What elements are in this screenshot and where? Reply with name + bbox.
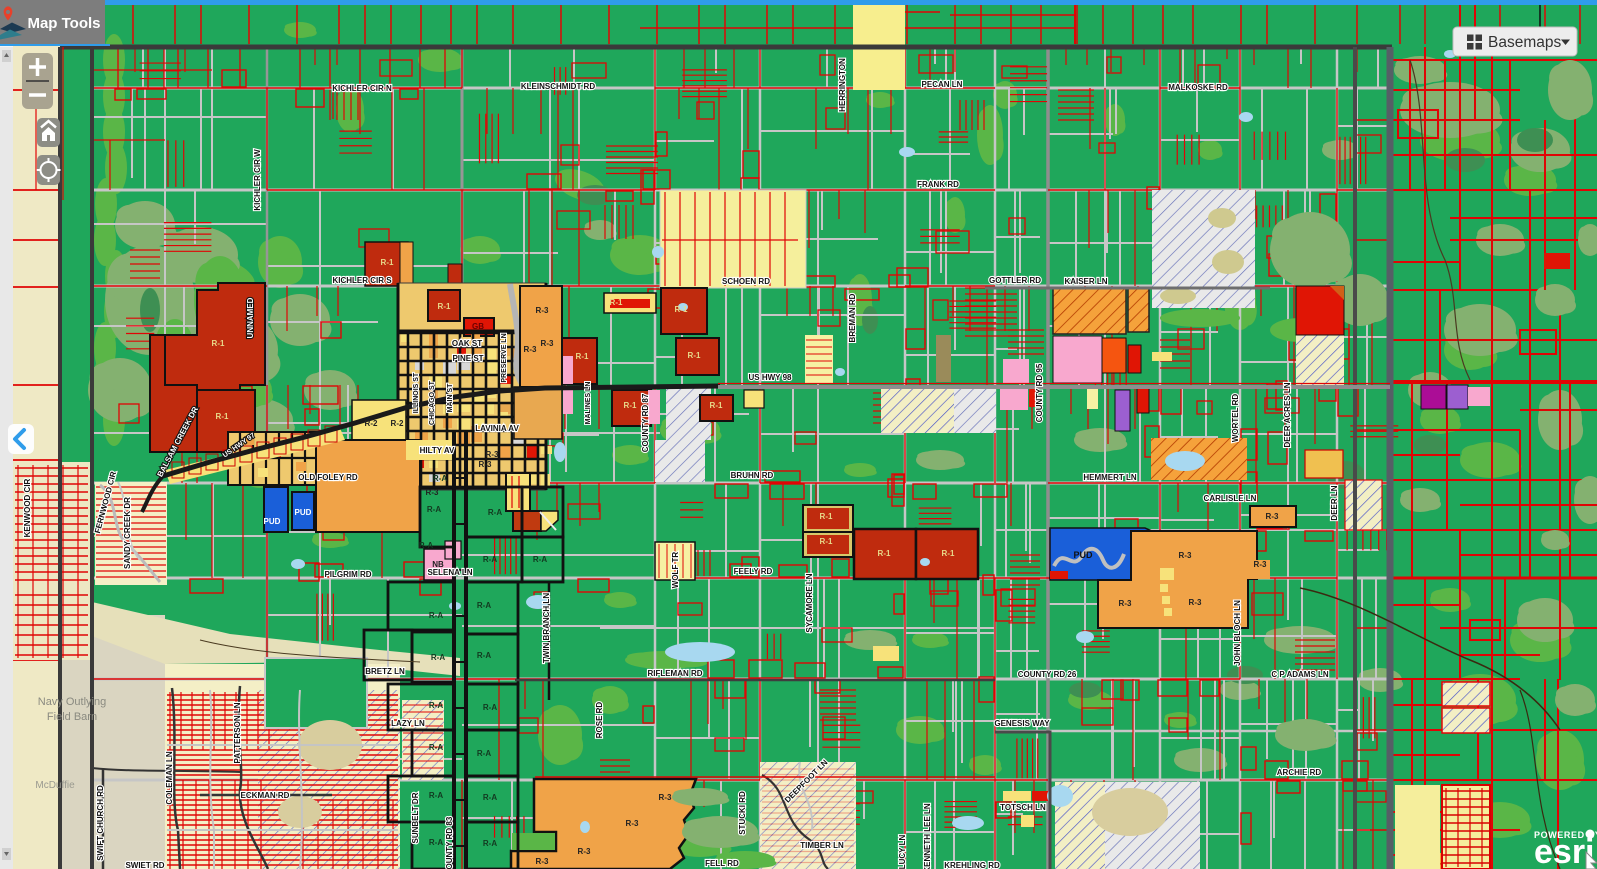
svg-text:R-1: R-1 bbox=[710, 401, 723, 410]
svg-text:LAVINIA AV: LAVINIA AV bbox=[475, 424, 519, 433]
svg-text:R-3: R-3 bbox=[1119, 599, 1132, 608]
svg-text:LUCY LN: LUCY LN bbox=[898, 835, 907, 869]
svg-text:C P ADAMS LN: C P ADAMS LN bbox=[1271, 670, 1329, 679]
svg-text:R-A: R-A bbox=[483, 793, 497, 802]
svg-text:R-A: R-A bbox=[533, 555, 547, 564]
svg-text:ARCHIE RD: ARCHIE RD bbox=[1277, 768, 1322, 777]
svg-text:STUCKI RD: STUCKI RD bbox=[738, 791, 747, 835]
svg-text:R-1: R-1 bbox=[576, 352, 589, 361]
svg-text:COUNTY RD 87: COUNTY RD 87 bbox=[641, 393, 650, 452]
svg-text:KREHLING RD: KREHLING RD bbox=[944, 861, 1000, 869]
svg-text:R-3: R-3 bbox=[541, 339, 554, 348]
svg-text:R-A: R-A bbox=[429, 743, 443, 752]
svg-text:BRETZ LN: BRETZ LN bbox=[365, 667, 405, 676]
svg-text:Navy Outlying: Navy Outlying bbox=[38, 696, 106, 708]
svg-text:R-2: R-2 bbox=[391, 419, 404, 428]
svg-text:R-1: R-1 bbox=[942, 549, 955, 558]
svg-text:R-3: R-3 bbox=[1179, 551, 1192, 560]
svg-text:RIFLEMAN RD: RIFLEMAN RD bbox=[647, 669, 702, 678]
svg-text:SWIFT CHURCH RD: SWIFT CHURCH RD bbox=[96, 785, 105, 861]
svg-text:PUD: PUD bbox=[1073, 550, 1093, 560]
svg-text:SWIET RD: SWIET RD bbox=[125, 861, 164, 869]
svg-text:R-3: R-3 bbox=[536, 306, 549, 315]
svg-text:R-1: R-1 bbox=[688, 351, 701, 360]
svg-text:CARLISLE LN: CARLISLE LN bbox=[1204, 494, 1257, 503]
svg-text:R-A: R-A bbox=[483, 555, 497, 564]
svg-text:R-2: R-2 bbox=[365, 419, 378, 428]
svg-text:DEER ACRES LN: DEER ACRES LN bbox=[1283, 382, 1292, 447]
svg-text:R-3: R-3 bbox=[524, 345, 537, 354]
svg-text:R-A: R-A bbox=[429, 611, 443, 620]
svg-text:WORTEL RD: WORTEL RD bbox=[1231, 394, 1240, 443]
svg-text:Basemaps: Basemaps bbox=[1488, 34, 1561, 51]
svg-text:GB: GB bbox=[472, 322, 484, 331]
svg-text:HILTY AV: HILTY AV bbox=[420, 446, 455, 455]
svg-text:SYCAMORE LN: SYCAMORE LN bbox=[805, 573, 814, 632]
svg-text:KLEINSCHMIDT RD: KLEINSCHMIDT RD bbox=[521, 82, 595, 91]
svg-text:PECAN LN: PECAN LN bbox=[922, 80, 963, 89]
svg-text:BRUHN RD: BRUHN RD bbox=[731, 471, 774, 480]
svg-text:PRESERVE LN: PRESERVE LN bbox=[501, 333, 508, 382]
svg-text:CHICAGO ST: CHICAGO ST bbox=[429, 380, 436, 425]
svg-text:SANDY CREEK DR: SANDY CREEK DR bbox=[123, 497, 132, 569]
svg-text:GOTTLER RD: GOTTLER RD bbox=[989, 276, 1041, 285]
svg-text:R-A: R-A bbox=[477, 651, 491, 660]
svg-text:FEELY RD: FEELY RD bbox=[734, 567, 773, 576]
svg-text:COUNTY RD 83: COUNTY RD 83 bbox=[445, 816, 454, 869]
svg-text:PINE ST: PINE ST bbox=[452, 354, 483, 363]
svg-text:TOTSCH LN: TOTSCH LN bbox=[1000, 803, 1046, 812]
svg-text:OLD FOLEY RD: OLD FOLEY RD bbox=[298, 473, 358, 482]
svg-text:GENESIS WAY: GENESIS WAY bbox=[994, 719, 1050, 728]
svg-text:R-1: R-1 bbox=[675, 305, 688, 314]
svg-text:R-1: R-1 bbox=[216, 412, 229, 421]
svg-text:PATTERSON LN: PATTERSON LN bbox=[233, 702, 242, 763]
svg-text:SCHOEN RD: SCHOEN RD bbox=[722, 277, 770, 286]
svg-text:DEER LN: DEER LN bbox=[1330, 485, 1339, 520]
svg-text:R-1: R-1 bbox=[381, 258, 394, 267]
svg-text:R-A: R-A bbox=[429, 791, 443, 800]
svg-text:MALKOSKE RD: MALKOSKE RD bbox=[1168, 83, 1228, 92]
svg-text:KAISER LN: KAISER LN bbox=[1064, 277, 1107, 286]
svg-text:Map Tools: Map Tools bbox=[27, 15, 100, 32]
svg-text:R-A: R-A bbox=[483, 839, 497, 848]
svg-text:TIMBER LN: TIMBER LN bbox=[800, 841, 844, 850]
svg-text:R-3: R-3 bbox=[479, 460, 492, 469]
svg-text:US HWY 98: US HWY 98 bbox=[749, 373, 793, 382]
svg-text:R-A: R-A bbox=[477, 749, 491, 758]
svg-text:KICHLER CIR S: KICHLER CIR S bbox=[332, 276, 392, 285]
svg-text:COLEMAN LN: COLEMAN LN bbox=[165, 751, 174, 805]
svg-text:R-A: R-A bbox=[477, 601, 491, 610]
svg-text:JOHN BLOCH LN: JOHN BLOCH LN bbox=[1233, 600, 1242, 666]
svg-text:R-3: R-3 bbox=[486, 450, 499, 459]
svg-text:KENWOOD CIR: KENWOOD CIR bbox=[23, 478, 32, 537]
svg-text:UNNAMED: UNNAMED bbox=[246, 297, 255, 338]
svg-text:R-3: R-3 bbox=[1254, 560, 1267, 569]
svg-text:ILLINOIS ST: ILLINOIS ST bbox=[413, 372, 420, 413]
svg-text:COUNTY RD 95: COUNTY RD 95 bbox=[1035, 363, 1044, 422]
svg-text:SELENA LN: SELENA LN bbox=[427, 568, 472, 577]
svg-text:FRANK RD: FRANK RD bbox=[917, 180, 959, 189]
svg-text:PUD: PUD bbox=[295, 508, 312, 517]
svg-text:R-A: R-A bbox=[433, 474, 447, 483]
svg-text:R-3: R-3 bbox=[1189, 598, 1202, 607]
svg-text:R-1: R-1 bbox=[610, 298, 623, 307]
svg-text:R-A: R-A bbox=[419, 541, 433, 550]
svg-text:R-3: R-3 bbox=[1266, 512, 1279, 521]
svg-text:Field Barn: Field Barn bbox=[47, 711, 97, 723]
svg-text:ROSE RD: ROSE RD bbox=[595, 702, 604, 739]
svg-text:R-3: R-3 bbox=[659, 793, 672, 802]
svg-text:PILGRIM RD: PILGRIM RD bbox=[324, 570, 371, 579]
svg-text:TWIN BRANCH LN: TWIN BRANCH LN bbox=[542, 593, 551, 663]
svg-text:MALINES LN: MALINES LN bbox=[585, 382, 592, 425]
svg-text:esri: esri bbox=[1534, 833, 1595, 869]
svg-text:R-A: R-A bbox=[429, 701, 443, 710]
svg-text:R-1: R-1 bbox=[624, 401, 637, 410]
svg-text:R-3: R-3 bbox=[536, 857, 549, 866]
svg-text:MAIN ST: MAIN ST bbox=[447, 383, 454, 413]
svg-text:R-3: R-3 bbox=[626, 819, 639, 828]
svg-text:ECKMAN RD: ECKMAN RD bbox=[241, 791, 290, 800]
svg-text:KENNETH LEE LN: KENNETH LEE LN bbox=[923, 803, 932, 869]
svg-text:SUNBELT DR: SUNBELT DR bbox=[411, 792, 420, 843]
svg-text:HERRINGTON: HERRINGTON bbox=[838, 58, 847, 112]
svg-text:R-A: R-A bbox=[488, 508, 502, 517]
svg-text:KICHLER CIR W: KICHLER CIR W bbox=[253, 149, 262, 211]
svg-text:R-1: R-1 bbox=[820, 512, 833, 521]
svg-text:COUNTY RD 26: COUNTY RD 26 bbox=[1018, 670, 1077, 679]
svg-text:R-A: R-A bbox=[483, 703, 497, 712]
svg-text:R-1: R-1 bbox=[820, 537, 833, 546]
svg-text:KICHLER CIR N: KICHLER CIR N bbox=[332, 84, 392, 93]
svg-text:R-1: R-1 bbox=[878, 549, 891, 558]
svg-text:FELL RD: FELL RD bbox=[705, 859, 739, 868]
svg-text:BREMAN RD: BREMAN RD bbox=[848, 293, 857, 342]
svg-text:R-3: R-3 bbox=[426, 488, 439, 497]
svg-text:OAK ST: OAK ST bbox=[452, 339, 482, 348]
svg-text:R-1: R-1 bbox=[212, 339, 225, 348]
svg-text:PUD: PUD bbox=[264, 517, 281, 526]
svg-text:R-A: R-A bbox=[427, 505, 441, 514]
svg-text:LAZY LN: LAZY LN bbox=[391, 719, 425, 728]
svg-text:HEMMERT LN: HEMMERT LN bbox=[1083, 473, 1137, 482]
svg-text:NB: NB bbox=[432, 560, 444, 569]
svg-text:R-1: R-1 bbox=[438, 302, 451, 311]
svg-text:R-A: R-A bbox=[429, 838, 443, 847]
svg-text:McDuffie: McDuffie bbox=[35, 780, 75, 791]
svg-text:R-3: R-3 bbox=[578, 847, 591, 856]
svg-text:WOLF TR: WOLF TR bbox=[671, 552, 680, 589]
svg-text:R-A: R-A bbox=[431, 653, 445, 662]
